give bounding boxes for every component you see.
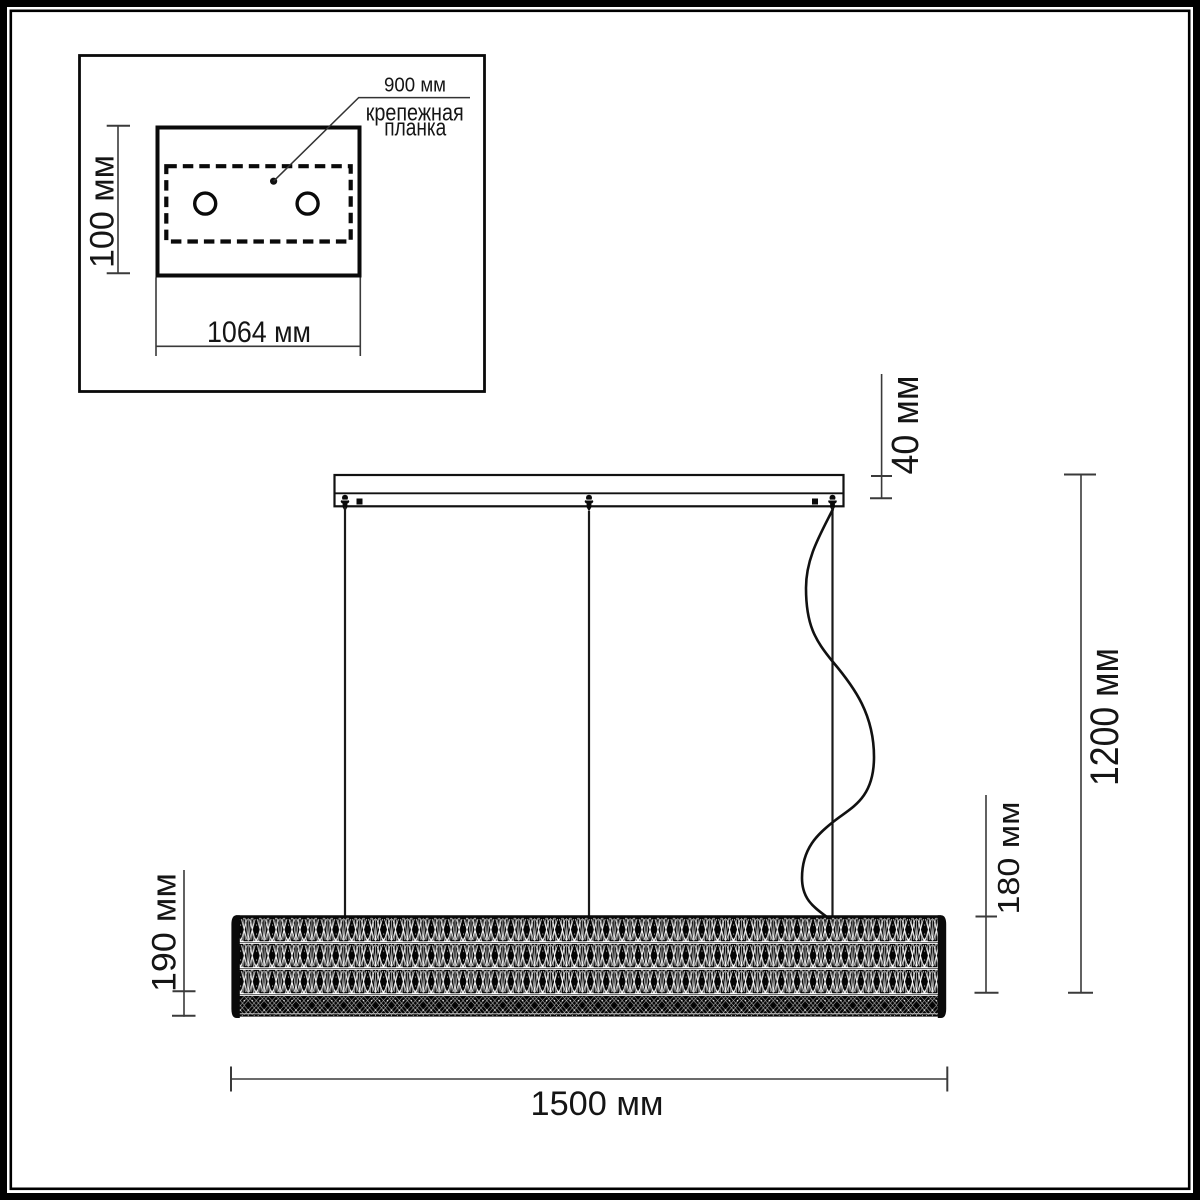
svg-text:1064 мм: 1064 мм [207,316,311,349]
svg-text:планка: планка [384,114,447,141]
svg-text:40 мм: 40 мм [885,376,927,475]
svg-text:1500 мм: 1500 мм [531,1085,664,1123]
svg-text:190 мм: 190 мм [146,873,184,992]
svg-text:1200 мм: 1200 мм [1083,648,1127,786]
svg-text:100 мм: 100 мм [84,155,122,268]
svg-text:180 мм: 180 мм [991,802,1026,915]
svg-text:900 мм: 900 мм [384,75,446,97]
